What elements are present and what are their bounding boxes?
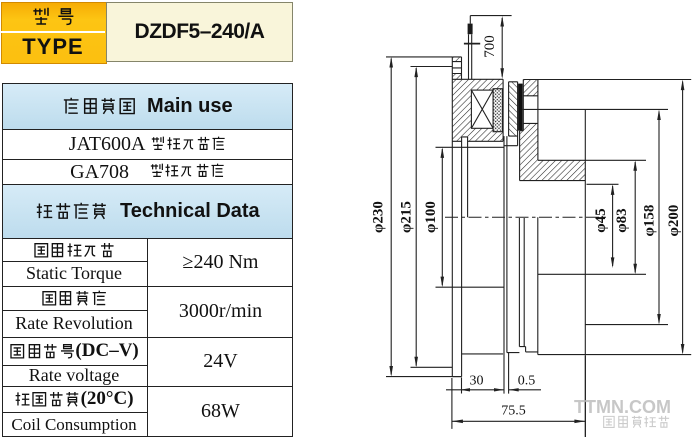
svg-text:φ230: φ230 [371,201,387,233]
svg-text:φ45: φ45 [593,208,609,232]
svg-text:φ83: φ83 [614,208,630,232]
svg-text:0.5: 0.5 [518,374,536,389]
svg-text:φ100: φ100 [423,201,439,233]
svg-text:700: 700 [482,35,498,58]
svg-text:φ215: φ215 [398,201,414,233]
svg-text:φ200: φ200 [666,205,682,237]
svg-text:φ158: φ158 [641,205,657,237]
svg-text:75.5: 75.5 [501,404,526,419]
svg-text:30: 30 [470,374,484,389]
